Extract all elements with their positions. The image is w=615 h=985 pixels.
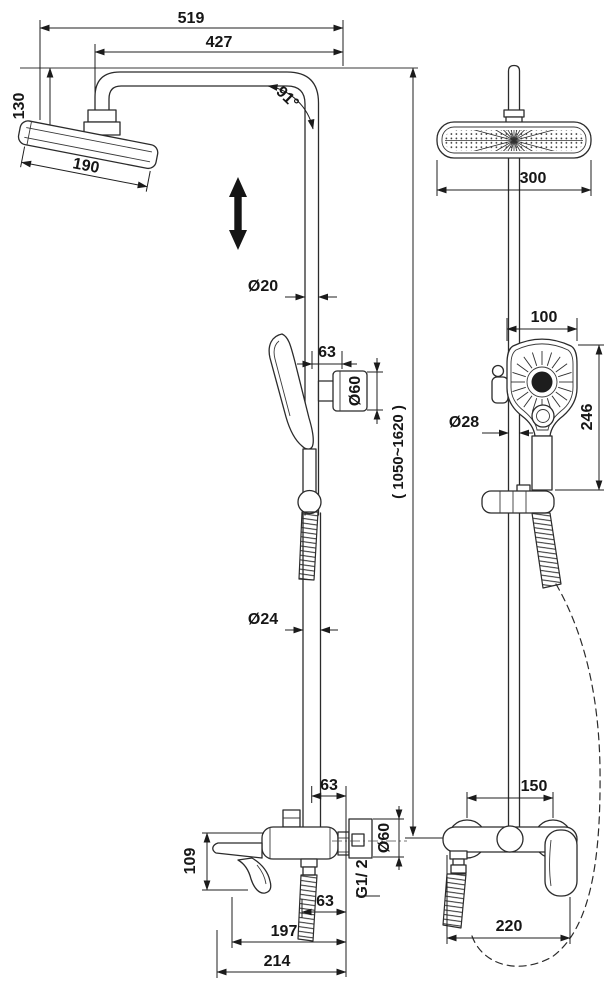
diverter-knob [283,810,300,827]
hose-coil-front [532,513,561,588]
hose-loop-dashed [472,584,600,966]
dim-label-130: 130 [11,93,28,120]
hose-coil-mixer-front [443,874,466,928]
dim-label-246: 246 [579,404,596,431]
dim-label-o60-holder: Ø60 [347,376,364,406]
hose-coil-mixer-side [298,875,317,941]
mixer-body-side [262,827,338,859]
dim-o20: Ø20 [248,278,337,297]
dim-label-519: 519 [178,10,205,27]
dim-label-109: 109 [182,848,199,875]
mode-button [532,405,554,427]
dim-label-150: 150 [521,778,548,795]
dim-63-holder: 63 [297,344,357,369]
hose-coil-side [299,512,318,580]
dim-427: 427 [95,34,343,106]
spray-face-texture [442,69,586,213]
wall-stub [352,834,364,846]
mixer-lever-tail [238,858,271,893]
thread-label: G1/ 2 [354,859,371,898]
spray-center [532,372,553,393]
dim-label-197: 197 [271,923,298,940]
dim-label-190: 190 [71,155,101,177]
mixer-front [443,820,577,928]
dim-label-o60-flange: Ø60 [376,823,393,853]
dim-label-height-range: ( 1050~1620 ) [390,405,407,499]
hook-bracket [492,366,508,404]
side-view: 519 427 130 [11,10,452,978]
technical-drawing-sheet: 519 427 130 [0,0,615,985]
dim-label-63-top: 63 [320,777,338,794]
dim-label-o24: Ø24 [248,611,278,628]
dim-150: 150 [467,778,553,818]
dim-label-214: 214 [264,953,291,970]
dim-o28: Ø28 [449,414,533,433]
front-view: 300 100 [437,66,604,967]
dim-o24: Ø24 [248,611,338,630]
overhead-shower-front [437,69,591,213]
dim-300: 300 [437,160,591,196]
dim-height-range: ( 1050~1620 ) [390,68,452,838]
dim-label-300: 300 [520,170,547,187]
dim-100: 100 [507,309,577,341]
dim-label-63-holder: 63 [318,344,336,361]
slider-knob-side [298,491,321,514]
hand-shower-front [507,339,577,490]
hand-shower-side [269,334,316,494]
head-connector [84,110,120,135]
shower-system-drawing: 519 427 130 [0,0,615,985]
cartridge-cap [497,826,523,852]
angle-annotation: 91° [268,83,313,129]
mixer-lever-blade [213,843,262,858]
dim-label-427: 427 [206,34,233,51]
dim-label-63-bottom: 63 [316,893,334,910]
shower-arm [95,72,319,515]
hand-shower-grip [303,449,316,494]
height-adjust-arrow-icon [229,177,247,250]
dim-o60-flange: Ø60 [373,806,404,870]
dim-label-o20: Ø20 [248,278,278,295]
hand-shower-handle-front [532,436,552,490]
dim-label-220: 220 [496,918,523,935]
dim-label-o28: Ø28 [449,414,479,431]
dim-label-100: 100 [531,309,558,326]
thread-annotation: G1/ 2 [354,859,380,898]
